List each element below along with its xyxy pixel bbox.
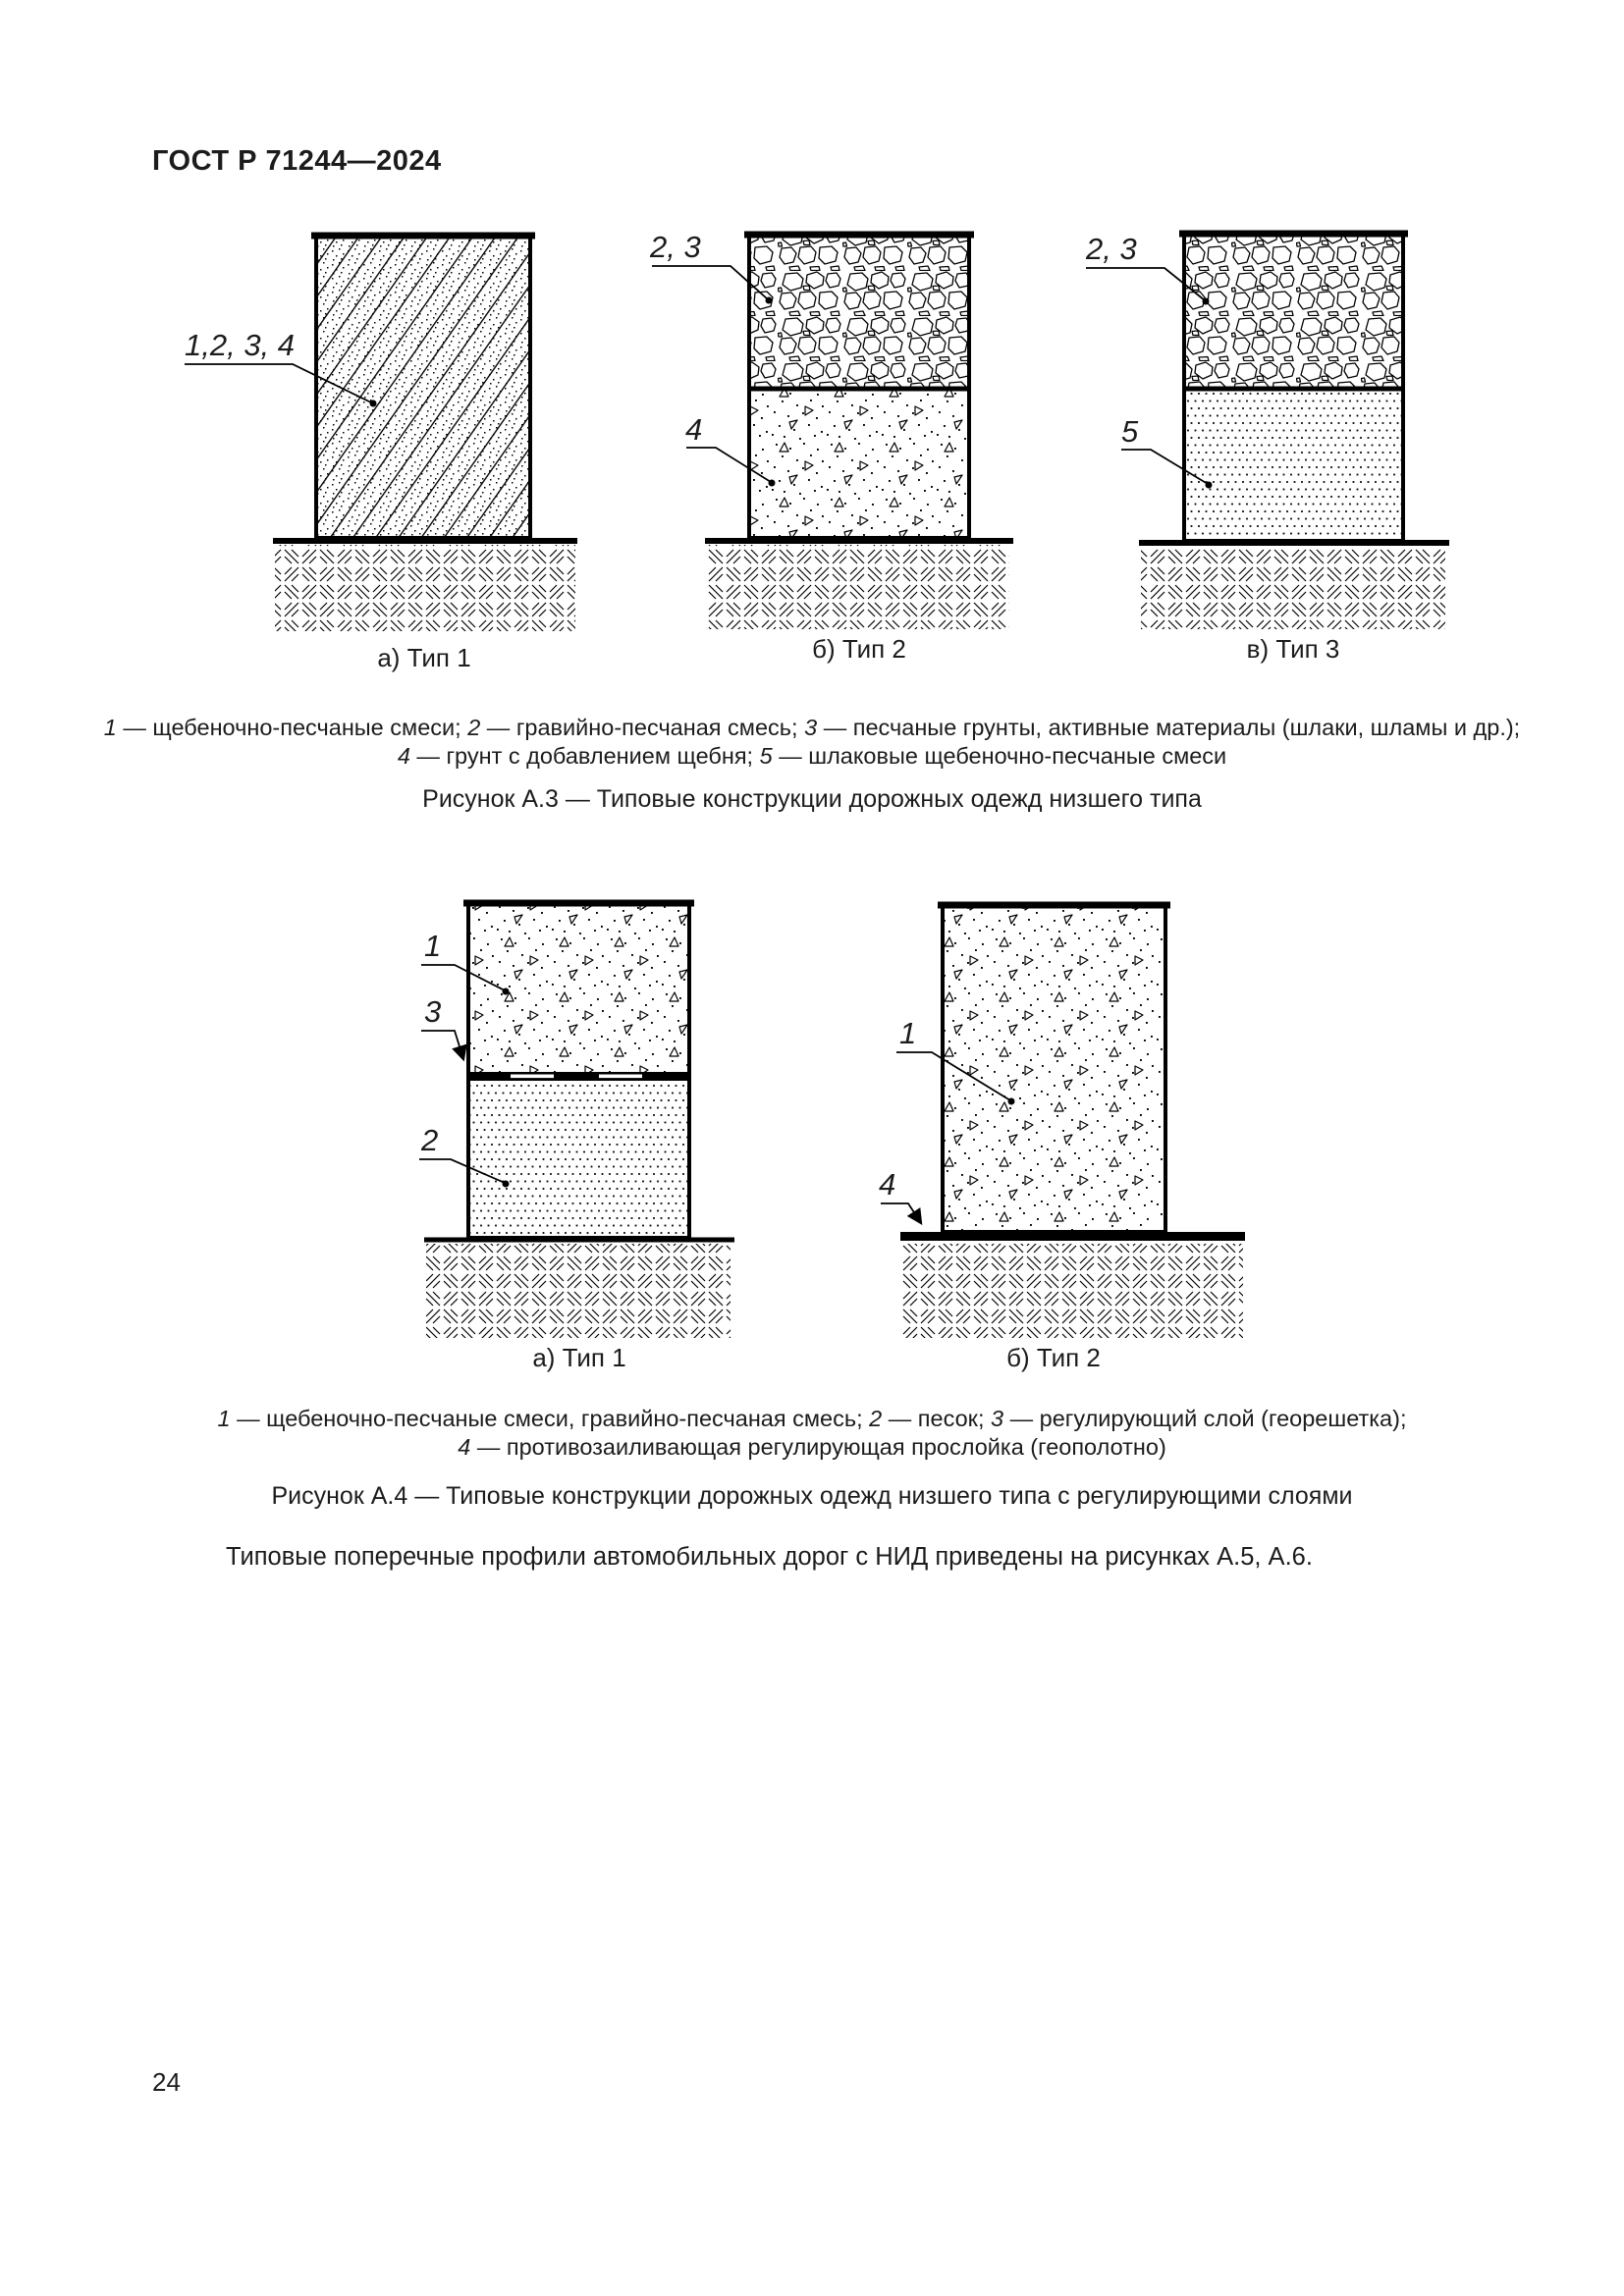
diagram-caption: а) Тип 1 [377,643,470,673]
layer-crushed-stone [1184,234,1403,389]
layer-label: 5 [1121,414,1138,450]
figure-a4-legend-line1: 1 — щебеночно-песчаные смеси, гравийно-п… [0,1406,1624,1432]
diagram-a3-type1 [167,221,599,643]
figure-a4-caption: Рисунок А.4 — Типовые конструкции дорожн… [0,1482,1624,1511]
diagram-caption: а) Тип 1 [532,1343,625,1373]
diagram-caption: б) Тип 2 [812,634,906,665]
layer-crushed-stone [749,235,969,389]
layer-label: 1 [899,1016,916,1051]
page-number: 24 [152,2067,181,2098]
geotextile-band [900,1232,1245,1241]
layer-label: 1 [424,929,441,964]
document-page: ГОСТ Р 71244—2024 1,2, 3, 4 а) Тип 1 2, … [0,0,1624,2296]
figure-a3-legend-line2: 4 — грунт с добавлением щебня; 5 — шлако… [0,743,1624,770]
diagram-caption: в) Тип 3 [1247,634,1340,665]
layer-label: 2, 3 [1086,232,1137,267]
layer-label: 2, 3 [650,230,701,265]
figure-a3-caption: Рисунок А.3 — Типовые конструкции дорожн… [0,785,1624,814]
layer-label: 4 [879,1167,895,1202]
figure-a3-legend-line1: 1 — щебеночно-песчаные смеси; 2 — гравий… [0,715,1624,741]
diagram-a4-type2 [864,883,1257,1350]
layer-label: 2 [421,1123,438,1158]
layer-crushed-sand-mix [468,903,689,1072]
ground-hatch [1141,547,1445,629]
figure-a4-legend-line2: 4 — противозаиливающая регулирующая прос… [0,1434,1624,1461]
ground-hatch [275,545,575,631]
ground-hatch [707,545,1009,629]
body-paragraph: Типовые поперечные профили автомобильных… [226,1543,1313,1572]
diagram-a4-type1 [403,883,756,1350]
standard-number-header: ГОСТ Р 71244—2024 [152,145,442,178]
leader-arrow [421,1031,463,1059]
diagram-caption: б) Тип 2 [1006,1343,1101,1373]
layer-soil-gravel [749,389,969,538]
layer-label: 3 [424,994,441,1030]
layer-slag-mix [1184,389,1403,541]
layer-label: 1,2, 3, 4 [185,328,295,363]
ground-hatch [426,1244,731,1338]
layer-sand [468,1081,689,1238]
layer-crushed-sand-mix [943,905,1165,1232]
geogrid-band [466,1072,691,1081]
layer-label: 4 [685,412,702,448]
ground-hatch [902,1244,1243,1338]
leader-arrow [881,1203,921,1223]
